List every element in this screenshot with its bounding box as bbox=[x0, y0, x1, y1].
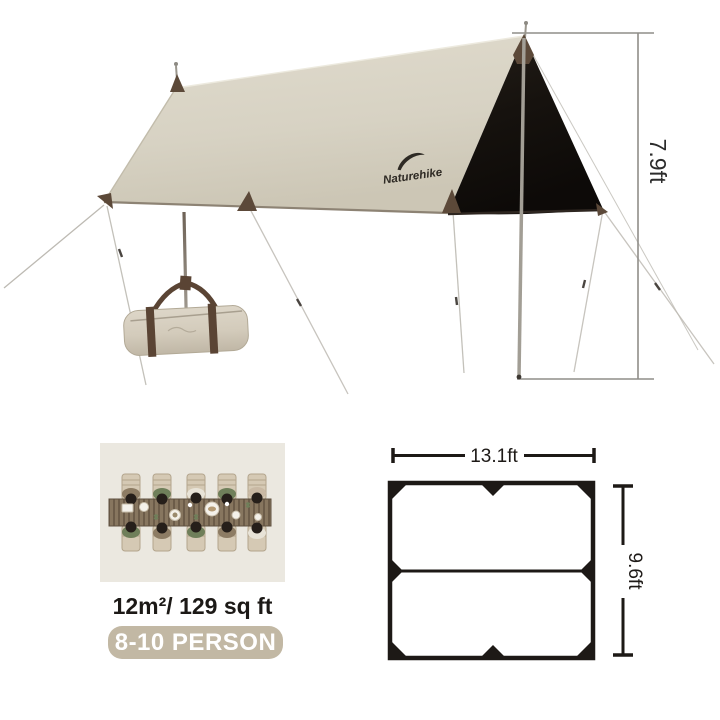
plan-depth-label: 9.6ft bbox=[624, 553, 645, 591]
carry-bag bbox=[123, 276, 249, 359]
capacity-badge-label: 8-10 PERSON bbox=[115, 629, 277, 656]
plan-width-label: 13.1ft bbox=[470, 446, 518, 467]
area-label: 12m²/ 129 sq ft bbox=[60, 591, 325, 621]
product-spec-image: 7.9ft bbox=[0, 0, 720, 720]
floorplan-diagram: 13.1ft 9.6ft bbox=[378, 438, 673, 683]
height-dimension-label: 7.9ft bbox=[645, 139, 671, 184]
capacity-badge: 8-10 PERSON bbox=[108, 626, 283, 659]
right-pole-foot bbox=[517, 375, 522, 380]
bag-strap-knot bbox=[180, 276, 192, 291]
capacity-illustration bbox=[100, 443, 285, 582]
guy-line-adjusters bbox=[119, 249, 660, 306]
capacity-illustration-panel bbox=[100, 443, 285, 582]
tent-illustration: 7.9ft bbox=[0, 0, 720, 440]
